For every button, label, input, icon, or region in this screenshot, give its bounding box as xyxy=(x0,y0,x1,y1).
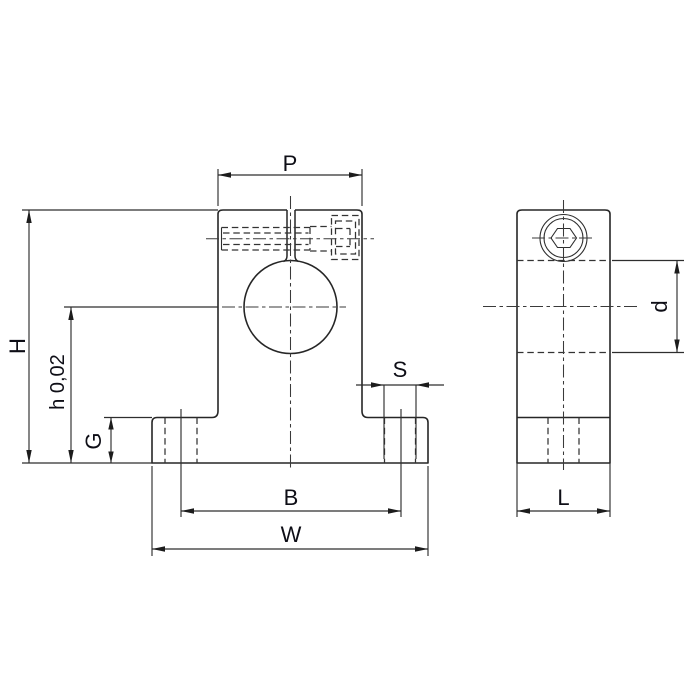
side-view: d L xyxy=(483,200,684,517)
dim-G: G xyxy=(81,418,152,464)
front-view: P H h 0,02 G xyxy=(5,151,444,556)
dim-h: h 0,02 xyxy=(47,307,218,463)
dim-S: S xyxy=(356,357,444,459)
screw-head-hidden xyxy=(336,221,356,254)
technical-drawing: P H h 0,02 G xyxy=(0,0,700,700)
dim-label-P: P xyxy=(283,151,298,176)
dim-label-W: W xyxy=(281,522,302,547)
dim-label-B: B xyxy=(284,485,299,510)
dim-label-S: S xyxy=(393,357,408,382)
drawing-canvas: P H h 0,02 G xyxy=(0,0,700,700)
dim-L: L xyxy=(517,463,610,517)
dim-label-L: L xyxy=(557,485,569,510)
side-center-lines xyxy=(483,200,637,470)
dim-label-h: h 0,02 xyxy=(47,354,69,410)
dim-d: d xyxy=(612,261,684,353)
front-center-lines xyxy=(222,196,346,471)
dim-label-d: d xyxy=(647,300,672,312)
dim-label-G: G xyxy=(81,432,106,449)
dim-label-H: H xyxy=(5,338,30,354)
